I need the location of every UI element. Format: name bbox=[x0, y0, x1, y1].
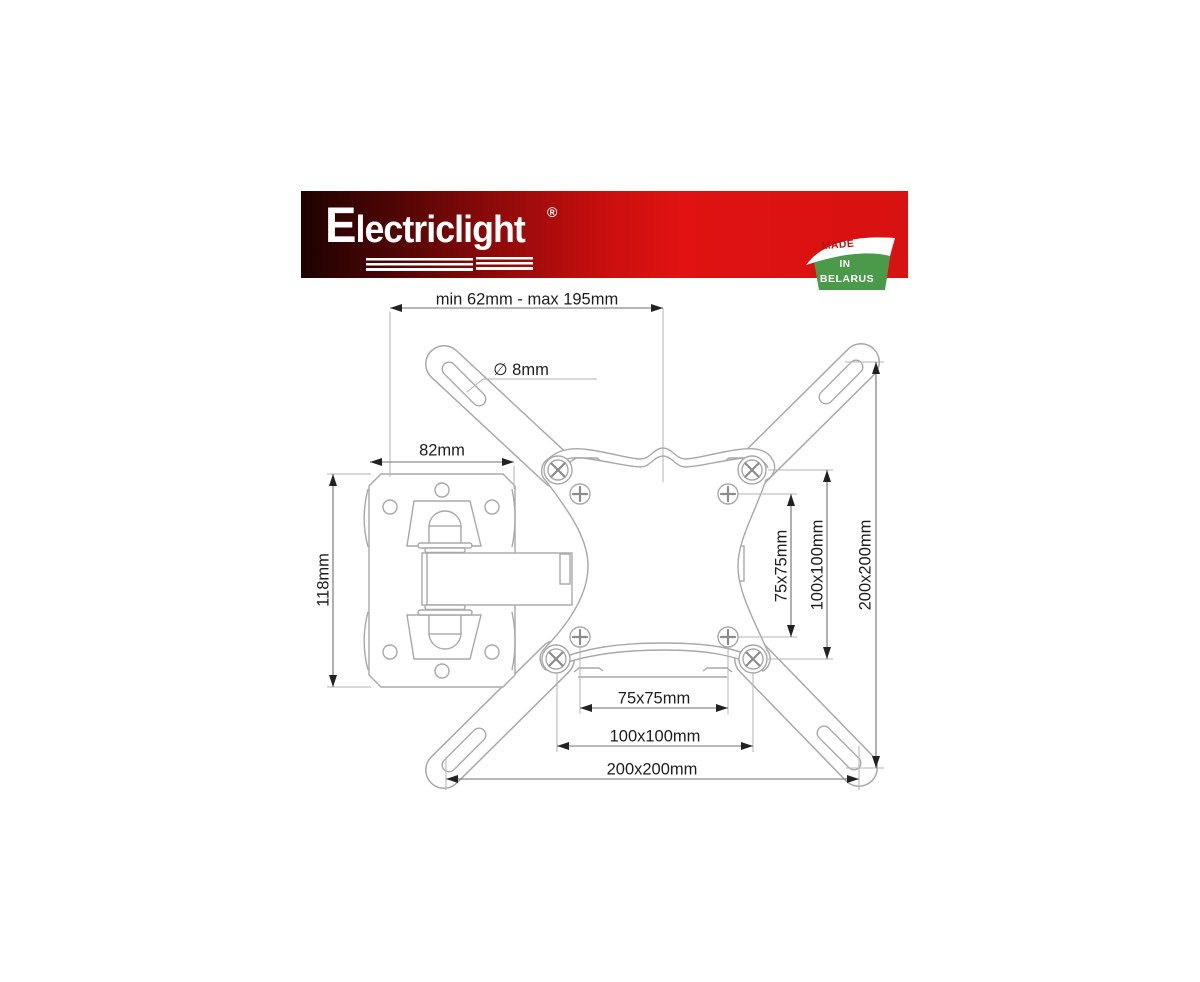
phillips-screw-x-icon bbox=[743, 649, 763, 669]
page: Electriclight ® MADE IN BELARUS bbox=[0, 0, 1200, 982]
wall-plate-flange bbox=[364, 612, 368, 670]
hinge-pin-block bbox=[429, 615, 461, 634]
phillips-screw-plus-icon bbox=[718, 627, 738, 647]
phillips-screw-x-icon bbox=[742, 460, 762, 480]
dim-label-plate-height: 118mm bbox=[315, 553, 334, 607]
vesa-arm-bottom-right bbox=[753, 659, 859, 768]
mounting-hole bbox=[485, 500, 499, 514]
dim-label-vesa200-vertical: 200x200mm bbox=[857, 520, 876, 611]
swivel-arm bbox=[418, 543, 572, 615]
phillips-screw-plus-icon bbox=[570, 484, 590, 504]
washer bbox=[425, 548, 465, 553]
dim-label-vesa75-vertical: 75x75mm bbox=[773, 530, 792, 602]
wall-mount-technical-drawing bbox=[0, 0, 1200, 982]
dim-label-hole-diameter: ∅ 8mm bbox=[493, 360, 549, 380]
vesa-plate-side-tab bbox=[560, 554, 570, 584]
washer bbox=[418, 543, 472, 548]
wall-plate-flange bbox=[364, 489, 368, 547]
dim-label-vesa200-horizontal: 200x200mm bbox=[607, 761, 698, 780]
mounting-hole bbox=[383, 500, 397, 514]
hinge-top bbox=[407, 501, 481, 546]
washer bbox=[418, 610, 472, 615]
dim-label-plate-width: 82mm bbox=[419, 442, 465, 461]
mounting-hole bbox=[435, 664, 449, 678]
phillips-screw-plus-icon bbox=[570, 627, 590, 647]
mounting-hole bbox=[383, 645, 397, 659]
dim-label-vesa100-vertical: 100x100mm bbox=[809, 520, 828, 611]
dim-label-extension-range: min 62mm - max 195mm bbox=[436, 291, 618, 310]
mounting-hole bbox=[485, 645, 499, 659]
vesa-plate-hook bbox=[574, 668, 603, 672]
phillips-screw-x-icon bbox=[546, 649, 566, 669]
phillips-screw-x-icon bbox=[548, 460, 568, 480]
washer bbox=[425, 605, 465, 610]
dim-label-vesa100-horizontal: 100x100mm bbox=[610, 728, 701, 747]
mounting-hole bbox=[435, 483, 449, 497]
phillips-screw-plus-icon bbox=[718, 484, 738, 504]
hinge-bottom bbox=[407, 615, 481, 659]
dim-label-vesa75-horizontal: 75x75mm bbox=[618, 690, 690, 709]
